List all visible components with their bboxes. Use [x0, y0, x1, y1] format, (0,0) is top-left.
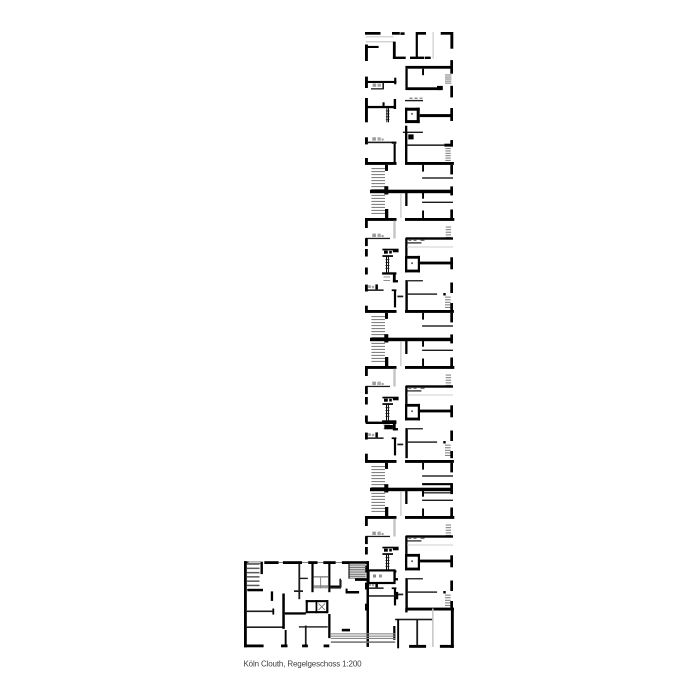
svg-text:Köln Clouth, Regelgeschoss 1:2: Köln Clouth, Regelgeschoss 1:200: [244, 660, 363, 669]
